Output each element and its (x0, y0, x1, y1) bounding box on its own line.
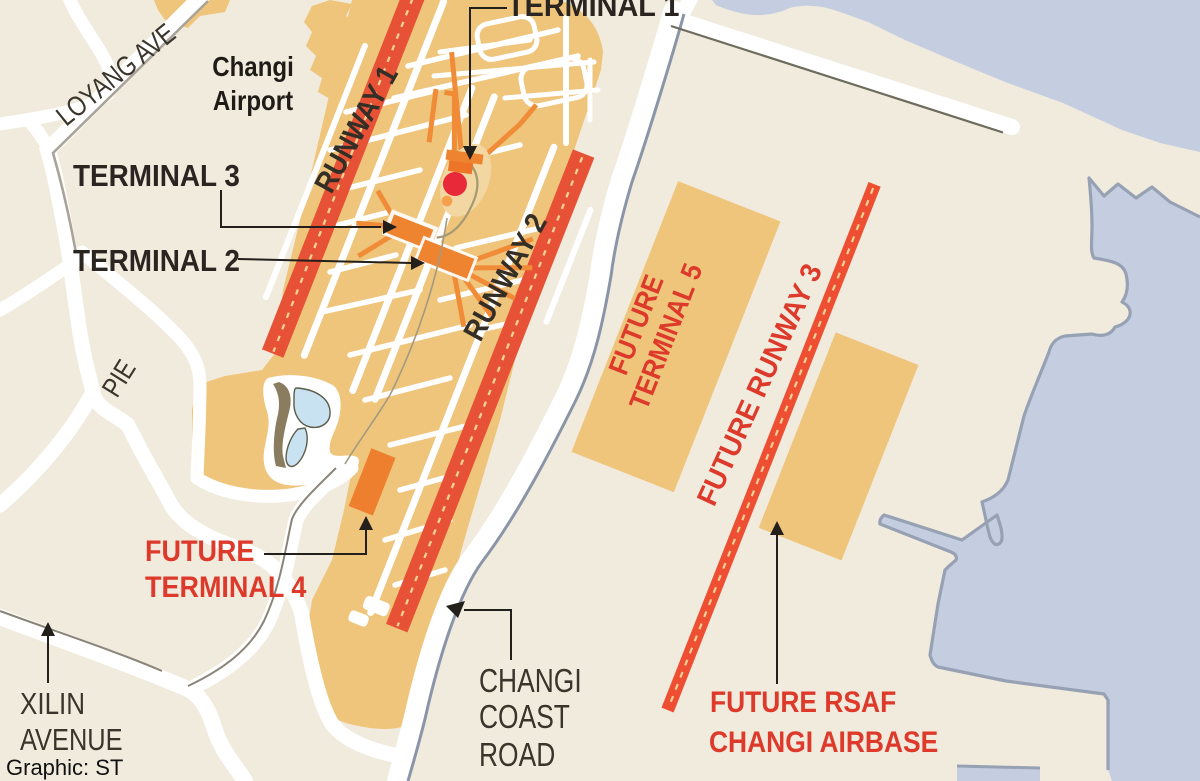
svg-text:FUTURE RSAF: FUTURE RSAF (710, 684, 896, 718)
svg-text:FUTURE: FUTURE (145, 535, 254, 569)
svg-text:Graphic: ST: Graphic: ST (6, 755, 123, 780)
svg-text:CHANGI: CHANGI (479, 663, 582, 699)
svg-text:TERMINAL 3: TERMINAL 3 (73, 159, 240, 194)
svg-text:Changi: Changi (212, 50, 294, 82)
svg-text:TERMINAL 4: TERMINAL 4 (145, 571, 307, 605)
svg-text:TERMINAL 1: TERMINAL 1 (507, 0, 679, 23)
svg-text:CHANGI AIRBASE: CHANGI AIRBASE (709, 724, 938, 758)
svg-text:Airport: Airport (213, 84, 294, 116)
svg-text:COAST: COAST (479, 699, 570, 735)
svg-text:AVENUE: AVENUE (20, 723, 123, 758)
svg-text:XILIN: XILIN (20, 687, 85, 722)
svg-text:ROAD: ROAD (479, 737, 555, 773)
svg-text:TERMINAL 2: TERMINAL 2 (73, 244, 240, 279)
